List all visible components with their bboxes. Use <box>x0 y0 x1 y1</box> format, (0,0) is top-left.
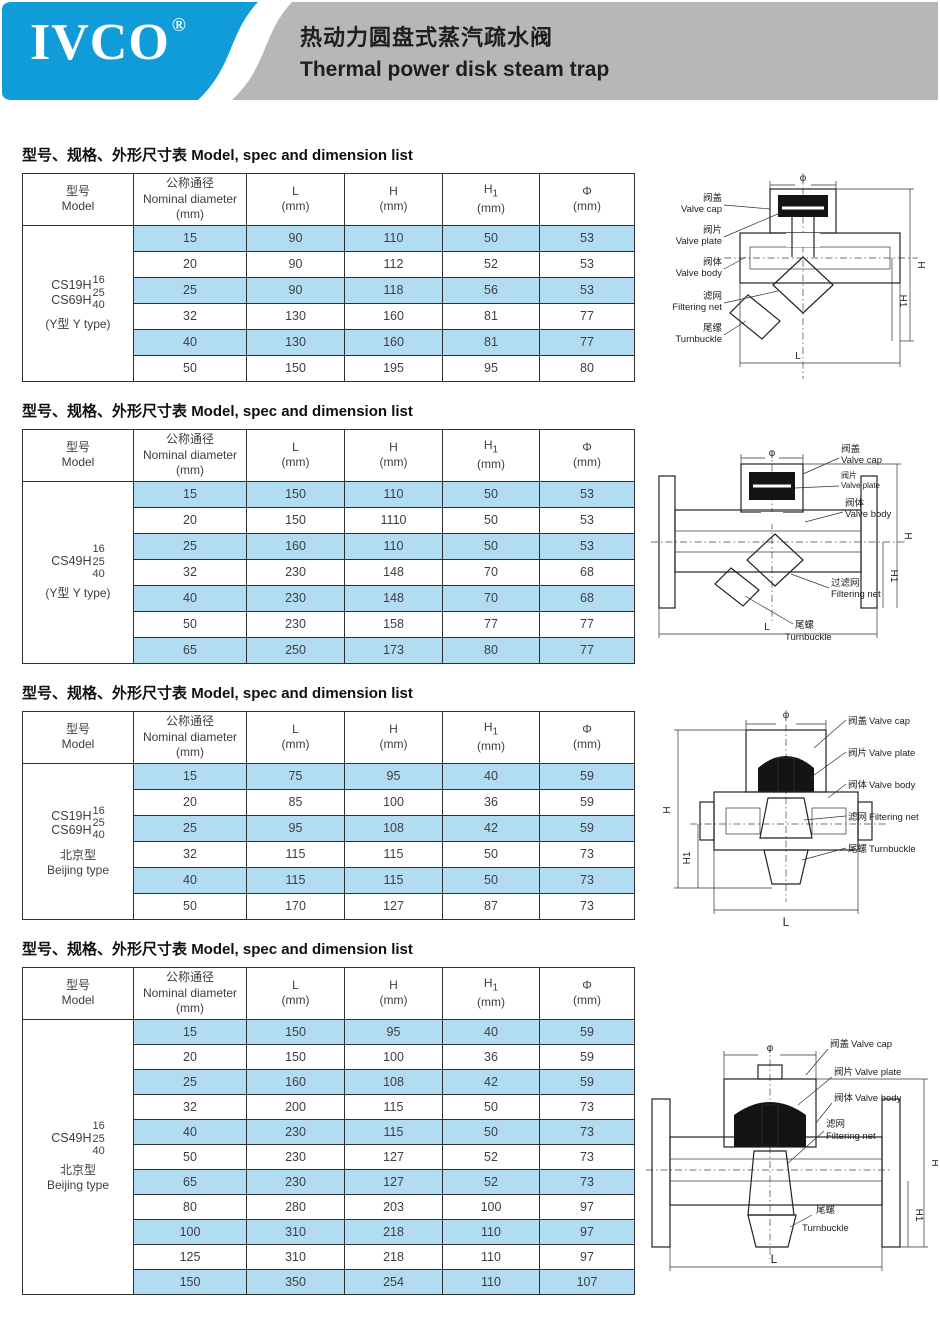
dim-h1: H1 <box>682 851 693 864</box>
dimension-cell: 108 <box>345 1069 443 1094</box>
table-header-row: 型号Model 公称通径Nominal diameter(mm) L(mm) H… <box>23 968 635 1020</box>
section-title-en: Model, spec and dimension list <box>191 403 413 420</box>
dimension-cell: 110 <box>345 533 443 559</box>
label-turnbuckle-zh: 尾螺 <box>795 620 815 631</box>
dimension-cell: 110 <box>345 481 443 507</box>
dimension-cell: 73 <box>540 841 635 867</box>
dimension-cell: 127 <box>345 893 443 919</box>
dimension-cell: 77 <box>540 303 635 329</box>
dim-h: H <box>662 806 673 813</box>
valve-diagram-4: 阀盖Valve cap 阀片Valve plate 阀体Valve body 滤… <box>638 1015 938 1295</box>
label-valve-plate: 阀片Valve plate <box>848 747 915 759</box>
model-type: (Y型 Y type) <box>23 586 133 601</box>
table-row: CS49H162540(Y型 Y type)151501105053 <box>23 481 635 507</box>
dimension-cell: 310 <box>247 1219 345 1244</box>
dimension-cell: 25 <box>134 277 247 303</box>
dim-phi: φ <box>783 710 790 721</box>
dimension-cell: 95 <box>247 815 345 841</box>
dimension-cell: 230 <box>247 585 345 611</box>
col-nominal-diameter: 公称通径Nominal diameter(mm) <box>134 430 247 482</box>
dimension-cell: 59 <box>540 789 635 815</box>
dimension-cell: 73 <box>540 1169 635 1194</box>
dimension-cell: 50 <box>443 507 540 533</box>
dimension-cell: 110 <box>443 1219 540 1244</box>
dimension-cell: 50 <box>443 1119 540 1144</box>
dimension-cell: 53 <box>540 277 635 303</box>
label-turnbuckle-en: Turnbuckle <box>675 334 722 345</box>
col-h1: H1(mm) <box>443 712 540 764</box>
dimension-cell: 218 <box>345 1219 443 1244</box>
dimension-cell: 115 <box>345 1094 443 1119</box>
label-turnbuckle-zh: 尾螺 <box>816 1205 836 1216</box>
model-pressure-ratings: 162540 <box>93 543 105 580</box>
valve-diagram-1: 阀盖 Valve cap 阀片 Valve plate 阀体 Valve bod… <box>648 165 936 387</box>
col-l: L(mm) <box>247 968 345 1020</box>
dimension-cell: 148 <box>345 559 443 585</box>
dimension-cell: 115 <box>345 841 443 867</box>
dimension-cell: 59 <box>540 763 635 789</box>
table-header-row: 型号Model 公称通径Nominal diameter(mm) L(mm) H… <box>23 430 635 482</box>
dimension-cell: 100 <box>345 789 443 815</box>
dimension-cell: 50 <box>443 1094 540 1119</box>
dimension-cell: 20 <box>134 251 247 277</box>
dimension-cell: 65 <box>134 637 247 663</box>
dimension-cell: 53 <box>540 225 635 251</box>
dimension-cell: 50 <box>443 867 540 893</box>
label-valve-cap: 阀盖Valve cap <box>830 1038 892 1050</box>
dimension-cell: 36 <box>443 1044 540 1069</box>
dimension-cell: 150 <box>247 481 345 507</box>
dimension-cell: 20 <box>134 789 247 815</box>
page-title: 热动力圆盘式蒸汽疏水阀 Thermal power disk steam tra… <box>300 20 609 82</box>
dimension-cell: 40 <box>134 585 247 611</box>
header-banner: IVCO® 热动力圆盘式蒸汽疏水阀 Thermal power disk ste… <box>0 0 940 102</box>
dimension-cell: 73 <box>540 893 635 919</box>
dimension-cell: 130 <box>247 303 345 329</box>
diagram-labels: 阀盖Valve cap 阀片Valve plate 阀体Valve body 滤… <box>767 1038 938 1266</box>
dimension-cell: 230 <box>247 1169 345 1194</box>
valve-diagram-3: 阀盖Valve cap 阀片Valve plate 阀体Valve body 滤… <box>642 698 938 932</box>
dimension-cell: 50 <box>443 533 540 559</box>
dimension-cell: 50 <box>134 1144 247 1169</box>
dim-h: H <box>929 1159 938 1166</box>
dimension-cell: 59 <box>540 815 635 841</box>
dim-l: L <box>771 1252 778 1266</box>
dimension-cell: 310 <box>247 1244 345 1269</box>
dimension-cell: 280 <box>247 1194 345 1219</box>
dimension-cell: 110 <box>443 1269 540 1294</box>
dimension-cell: 68 <box>540 585 635 611</box>
table-row: CS19HCS69H162540(Y型 Y type)15901105053 <box>23 225 635 251</box>
dimension-cell: 77 <box>540 611 635 637</box>
dimension-cell: 81 <box>443 329 540 355</box>
col-phi: Φ(mm) <box>540 174 635 226</box>
dimension-cell: 50 <box>134 611 247 637</box>
dimension-cell: 80 <box>540 355 635 381</box>
dimension-cell: 32 <box>134 559 247 585</box>
spec-table-4: 型号Model 公称通径Nominal diameter(mm) L(mm) H… <box>22 967 635 1295</box>
dimension-cell: 148 <box>345 585 443 611</box>
col-h: H(mm) <box>345 968 443 1020</box>
dimension-cell: 25 <box>134 533 247 559</box>
col-l: L(mm) <box>247 174 345 226</box>
col-phi: Φ(mm) <box>540 430 635 482</box>
dimension-cell: 150 <box>247 355 345 381</box>
dimension-cell: 118 <box>345 277 443 303</box>
dimension-cell: 230 <box>247 1144 345 1169</box>
valve-drawing <box>651 450 907 638</box>
dimension-cell: 50 <box>443 841 540 867</box>
dimension-cell: 1110 <box>345 507 443 533</box>
dimension-cell: 85 <box>247 789 345 815</box>
dimension-cell: 20 <box>134 507 247 533</box>
dimension-cell: 97 <box>540 1194 635 1219</box>
dimension-cell: 100 <box>443 1194 540 1219</box>
dimension-cell: 80 <box>443 637 540 663</box>
dim-l: L <box>764 622 770 633</box>
dimension-cell: 32 <box>134 841 247 867</box>
label-turnbuckle: 尾螺Turnbuckle <box>848 844 916 855</box>
dimension-cell: 77 <box>540 329 635 355</box>
label-valve-plate-en: Valve plate <box>676 236 722 247</box>
dimension-cell: 160 <box>247 1069 345 1094</box>
dim-l: L <box>783 915 790 929</box>
spec-table-2: 型号Model 公称通径Nominal diameter(mm) L(mm) H… <box>22 429 635 664</box>
spec-section-3: 型号、规格、外形尺寸表 Model, spec and dimension li… <box>22 684 636 920</box>
col-l: L(mm) <box>247 712 345 764</box>
dimension-cell: 32 <box>134 303 247 329</box>
dimension-cell: 100 <box>345 1044 443 1069</box>
dimension-cell: 40 <box>134 867 247 893</box>
dimension-cell: 200 <box>247 1094 345 1119</box>
label-valve-body: 阀体Valve body <box>848 779 916 791</box>
dimension-cell: 32 <box>134 1094 247 1119</box>
label-valve-cap-zh: 阀盖 <box>703 192 723 204</box>
col-nominal-diameter: 公称通径Nominal diameter(mm) <box>134 968 247 1020</box>
dimension-cell: 97 <box>540 1244 635 1269</box>
section-title-zh: 型号、规格、外形尺寸表 <box>22 147 187 164</box>
dimension-cell: 15 <box>134 763 247 789</box>
dimension-cell: 52 <box>443 1144 540 1169</box>
dimension-cell: 97 <box>540 1219 635 1244</box>
dim-l: L <box>795 351 801 362</box>
model-cell: CS49H162540(Y型 Y type) <box>23 481 134 663</box>
dim-phi: φ <box>800 173 807 184</box>
dimension-cell: 50 <box>443 225 540 251</box>
label-valve-plate-en: Valve plate <box>841 481 881 490</box>
dimension-cell: 70 <box>443 585 540 611</box>
dimension-cell: 130 <box>247 329 345 355</box>
dimension-cell: 115 <box>247 867 345 893</box>
model-names: CS49H <box>51 554 91 569</box>
section-title-en: Model, spec and dimension list <box>191 147 413 164</box>
dim-phi: φ <box>767 1043 774 1054</box>
model-names: CS19HCS69H <box>51 278 91 308</box>
table-row: CS19HCS69H162540北京型Beijing type157595405… <box>23 763 635 789</box>
label-filtering-net-en: Filtering net <box>831 589 881 600</box>
label-filtering-net-zh: 滤网 <box>826 1118 845 1130</box>
dimension-cell: 150 <box>247 507 345 533</box>
spec-section-2: 型号、规格、外形尺寸表 Model, spec and dimension li… <box>22 402 636 664</box>
label-filtering-net-en: Filtering net <box>826 1131 876 1142</box>
section-title-zh: 型号、规格、外形尺寸表 <box>22 941 187 958</box>
col-phi: Φ(mm) <box>540 968 635 1020</box>
col-h: H(mm) <box>345 430 443 482</box>
dimension-cell: 90 <box>247 277 345 303</box>
dimension-cell: 68 <box>540 559 635 585</box>
dimension-cell: 73 <box>540 1144 635 1169</box>
dimension-cell: 52 <box>443 251 540 277</box>
dimension-cell: 160 <box>247 533 345 559</box>
col-model: 型号Model <box>23 712 134 764</box>
model-names: CS49H <box>51 1131 91 1146</box>
dimension-cell: 80 <box>134 1194 247 1219</box>
dimension-cell: 195 <box>345 355 443 381</box>
registered-mark: ® <box>172 15 187 36</box>
dimension-cell: 59 <box>540 1019 635 1044</box>
col-h1: H1(mm) <box>443 968 540 1020</box>
section-title: 型号、规格、外形尺寸表 Model, spec and dimension li… <box>22 402 636 422</box>
dimension-cell: 250 <box>247 637 345 663</box>
section-title-zh: 型号、规格、外形尺寸表 <box>22 403 187 420</box>
dimension-cell: 52 <box>443 1169 540 1194</box>
model-type: 北京型Beijing type <box>23 1163 133 1193</box>
dimension-cell: 95 <box>345 763 443 789</box>
dimension-cell: 77 <box>540 637 635 663</box>
spec-table-3: 型号Model 公称通径Nominal diameter(mm) L(mm) H… <box>22 711 635 920</box>
col-h: H(mm) <box>345 712 443 764</box>
dimension-cell: 53 <box>540 481 635 507</box>
col-model: 型号Model <box>23 430 134 482</box>
dimension-cell: 40 <box>443 763 540 789</box>
dimension-cell: 73 <box>540 867 635 893</box>
dimension-cell: 107 <box>540 1269 635 1294</box>
dimension-cell: 59 <box>540 1044 635 1069</box>
label-turnbuckle-zh: 尾缧 <box>703 322 723 334</box>
dimension-cell: 36 <box>443 789 540 815</box>
dimension-cell: 70 <box>443 559 540 585</box>
dimension-cell: 115 <box>345 1119 443 1144</box>
model-pressure-ratings: 162540 <box>93 274 105 311</box>
dimension-cell: 108 <box>345 815 443 841</box>
brand-logo-text: IVCO <box>30 14 170 71</box>
dimension-cell: 40 <box>134 1119 247 1144</box>
model-pressure-ratings: 162540 <box>93 1120 105 1157</box>
label-valve-body-zh: 阀体 <box>845 497 865 509</box>
dimension-cell: 50 <box>134 893 247 919</box>
dimension-cell: 127 <box>345 1144 443 1169</box>
dimension-cell: 350 <box>247 1269 345 1294</box>
col-nominal-diameter: 公称通径Nominal diameter(mm) <box>134 174 247 226</box>
spec-section-1: 型号、规格、外形尺寸表 Model, spec and dimension li… <box>22 146 636 382</box>
dimension-cell: 25 <box>134 1069 247 1094</box>
col-model: 型号Model <box>23 968 134 1020</box>
label-filtering-net-zh: 过滤网 <box>831 577 860 589</box>
page-title-zh: 热动力圆盘式蒸汽疏水阀 <box>300 20 609 52</box>
spec-section-4: 型号、规格、外形尺寸表 Model, spec and dimension li… <box>22 940 636 1295</box>
dimension-cell: 15 <box>134 225 247 251</box>
model-cell: CS19HCS69H162540(Y型 Y type) <box>23 225 134 381</box>
dim-h: H <box>902 532 913 539</box>
section-title: 型号、规格、外形尺寸表 Model, spec and dimension li… <box>22 940 636 960</box>
spec-table-1: 型号Model 公称通径Nominal diameter(mm) L(mm) H… <box>22 173 635 382</box>
label-filtering-net-en: Filtering net <box>672 302 722 313</box>
col-nominal-diameter: 公称通径Nominal diameter(mm) <box>134 712 247 764</box>
label-valve-body-en: Valve body <box>845 509 892 520</box>
dimension-cell: 230 <box>247 611 345 637</box>
dimension-cell: 203 <box>345 1194 443 1219</box>
dimension-cell: 254 <box>345 1269 443 1294</box>
page-title-en: Thermal power disk steam trap <box>300 58 609 82</box>
dimension-cell: 173 <box>345 637 443 663</box>
dimension-cell: 230 <box>247 1119 345 1144</box>
dimension-cell: 73 <box>540 1119 635 1144</box>
model-pressure-ratings: 162540 <box>93 805 105 842</box>
label-filtering-net-zh: 滤网 <box>703 290 722 302</box>
dimension-cell: 90 <box>247 251 345 277</box>
dimension-cell: 218 <box>345 1244 443 1269</box>
table-header-row: 型号Model 公称通径Nominal diameter(mm) L(mm) H… <box>23 712 635 764</box>
label-valve-plate-zh: 阀片 <box>703 224 722 236</box>
label-valve-plate-zh: 阀片 <box>841 470 857 480</box>
dimension-cell: 73 <box>540 1094 635 1119</box>
label-valve-cap: 阀盖Valve cap <box>848 715 910 727</box>
dimension-cell: 150 <box>247 1044 345 1069</box>
dimension-cell: 160 <box>345 329 443 355</box>
label-turnbuckle-en: Turnbuckle <box>802 1223 849 1234</box>
dim-h1: H1 <box>913 1209 924 1222</box>
dimension-cell: 230 <box>247 559 345 585</box>
dimension-cell: 40 <box>134 329 247 355</box>
dimension-cell: 15 <box>134 1019 247 1044</box>
dimension-cell: 87 <box>443 893 540 919</box>
dimension-cell: 42 <box>443 1069 540 1094</box>
dimension-cell: 115 <box>247 841 345 867</box>
col-h1: H1(mm) <box>443 174 540 226</box>
dimension-cell: 15 <box>134 481 247 507</box>
dimension-cell: 95 <box>345 1019 443 1044</box>
label-valve-body-en: Valve body <box>676 268 723 279</box>
model-type: 北京型Beijing type <box>23 848 133 878</box>
dimension-cell: 127 <box>345 1169 443 1194</box>
dimension-cell: 53 <box>540 507 635 533</box>
dimension-cell: 170 <box>247 893 345 919</box>
dimension-cell: 112 <box>345 251 443 277</box>
dimension-cell: 53 <box>540 251 635 277</box>
section-title-zh: 型号、规格、外形尺寸表 <box>22 685 187 702</box>
dimension-cell: 110 <box>443 1244 540 1269</box>
section-title: 型号、规格、外形尺寸表 Model, spec and dimension li… <box>22 146 636 166</box>
col-h1: H1(mm) <box>443 430 540 482</box>
label-turnbuckle-en: Turnbuckle <box>785 632 832 643</box>
dimension-cell: 53 <box>540 533 635 559</box>
dimension-cell: 150 <box>247 1019 345 1044</box>
col-phi: Φ(mm) <box>540 712 635 764</box>
dimension-cell: 150 <box>134 1269 247 1294</box>
dimension-cell: 42 <box>443 815 540 841</box>
section-title-en: Model, spec and dimension list <box>191 941 413 958</box>
label-filtering-net: 滤网Filtering net <box>848 811 919 823</box>
label-valve-cap-zh: 阀盖 <box>841 443 861 455</box>
dim-h1: H1 <box>888 570 899 583</box>
label-valve-body: 阀体Valve body <box>834 1092 902 1104</box>
dimension-cell: 65 <box>134 1169 247 1194</box>
valve-drawing <box>724 173 918 379</box>
label-valve-cap-en: Valve cap <box>681 204 722 215</box>
dimension-cell: 75 <box>247 763 345 789</box>
brand-logo: IVCO® <box>30 16 187 69</box>
dimension-cell: 90 <box>247 225 345 251</box>
section-title-en: Model, spec and dimension list <box>191 685 413 702</box>
dimension-cell: 50 <box>443 481 540 507</box>
dimension-cell: 158 <box>345 611 443 637</box>
valve-diagram-2: 阀盖 Valve cap 阀片 Valve plate 阀体 Valve bod… <box>645 438 937 658</box>
col-l: L(mm) <box>247 430 345 482</box>
dimension-cell: 125 <box>134 1244 247 1269</box>
label-valve-plate: 阀片Valve plate <box>834 1066 901 1078</box>
dimension-cell: 50 <box>134 355 247 381</box>
model-type: (Y型 Y type) <box>23 317 133 332</box>
col-model: 型号Model <box>23 174 134 226</box>
dimension-cell: 110 <box>345 225 443 251</box>
label-valve-body-zh: 阀体 <box>703 256 723 268</box>
valve-drawing <box>646 1045 928 1271</box>
dimension-cell: 115 <box>345 867 443 893</box>
table-row: CS49H162540北京型Beijing type15150954059 <box>23 1019 635 1044</box>
dimension-cell: 77 <box>443 611 540 637</box>
dimension-cell: 100 <box>134 1219 247 1244</box>
dimension-cell: 95 <box>443 355 540 381</box>
dim-h: H <box>915 261 926 268</box>
dim-h1: H1 <box>897 295 908 308</box>
label-valve-cap-en: Valve cap <box>841 455 882 466</box>
section-title: 型号、规格、外形尺寸表 Model, spec and dimension li… <box>22 684 636 704</box>
dimension-cell: 20 <box>134 1044 247 1069</box>
dimension-cell: 40 <box>443 1019 540 1044</box>
dimension-cell: 25 <box>134 815 247 841</box>
model-names: CS19HCS69H <box>51 809 91 839</box>
model-cell: CS49H162540北京型Beijing type <box>23 1019 134 1294</box>
table-header-row: 型号Model 公称通径Nominal diameter(mm) L(mm) H… <box>23 174 635 226</box>
dim-phi: φ <box>769 448 776 459</box>
dimension-cell: 56 <box>443 277 540 303</box>
dimension-cell: 160 <box>345 303 443 329</box>
dimension-cell: 59 <box>540 1069 635 1094</box>
dimension-cell: 81 <box>443 303 540 329</box>
model-cell: CS19HCS69H162540北京型Beijing type <box>23 763 134 919</box>
col-h: H(mm) <box>345 174 443 226</box>
